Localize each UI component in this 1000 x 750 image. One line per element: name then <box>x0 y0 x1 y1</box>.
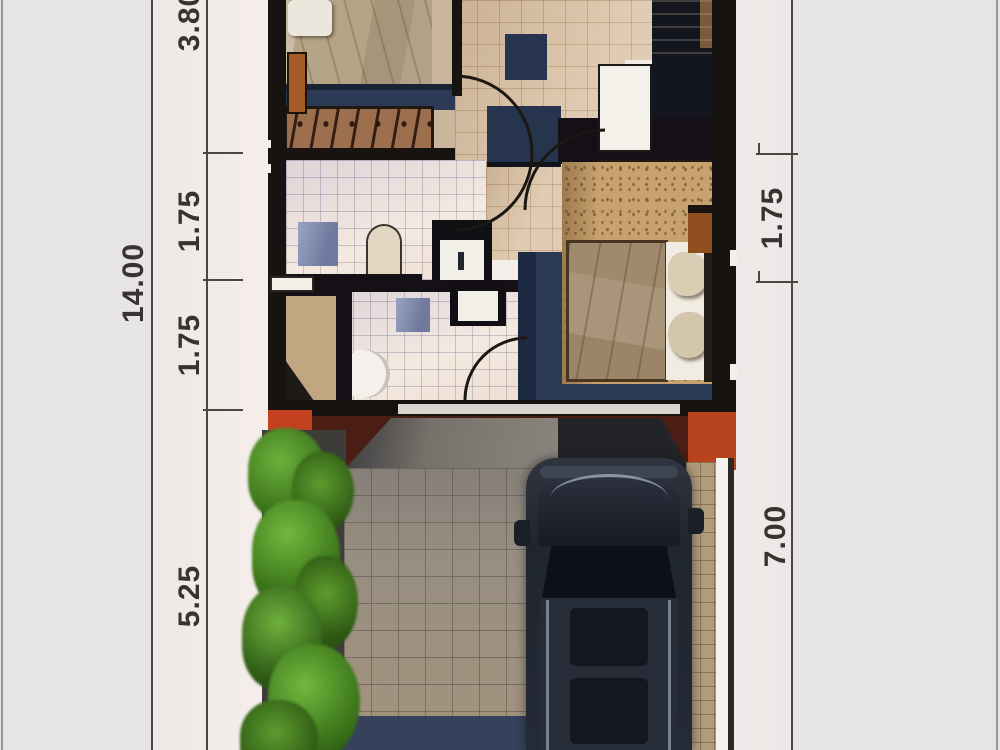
dim-label-left-seg-4: 5.25 <box>173 565 207 627</box>
dimension-tick-stub <box>758 271 760 283</box>
dimension-line-left-outer <box>151 0 153 750</box>
dim-label-left-seg-1: 3.80 <box>173 0 207 51</box>
floor-plan-canvas: 14.00 3.80 1.75 1.75 5.25 1.75 7.00 <box>0 0 1000 750</box>
dimension-tick-stub <box>758 143 760 155</box>
dim-label-left-seg-2: 1.75 <box>173 190 207 252</box>
dimension-tick <box>756 153 798 155</box>
dimension-tick-stub <box>206 281 208 293</box>
dimension-tick <box>203 152 243 154</box>
dimension-tick <box>756 281 798 283</box>
dim-label-left-seg-3: 1.75 <box>173 314 207 376</box>
dimension-tick <box>203 279 243 281</box>
dimension-tick-stub <box>206 154 208 166</box>
dimension-tick <box>203 409 243 411</box>
dimension-line-right <box>791 0 793 750</box>
dim-label-right-seg-1: 1.75 <box>756 187 790 249</box>
dim-label-total-left: 14.00 <box>117 243 151 323</box>
dimension-tick-stub <box>206 411 208 423</box>
dim-label-right-seg-2: 7.00 <box>759 505 793 567</box>
door-swing-icon <box>0 0 1000 750</box>
